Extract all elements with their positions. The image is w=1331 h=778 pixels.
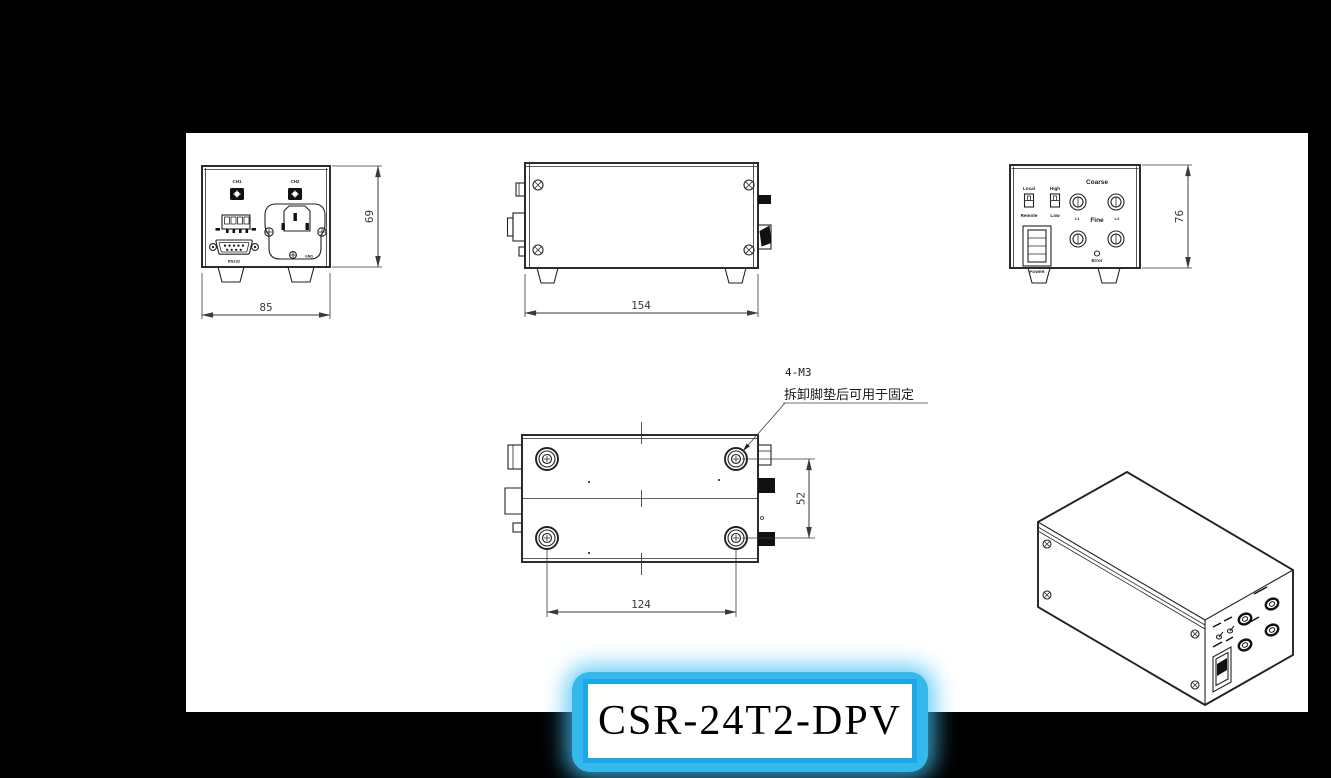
coarse-knob-l1 <box>1070 194 1086 210</box>
model-number: CSR-24T2-DPV <box>598 697 902 745</box>
front-view: Local High Remote Low <box>1010 165 1192 283</box>
dim-rear-height: 69 <box>363 210 376 223</box>
rear-label-ch2: CH2 <box>290 179 299 184</box>
rear-foot-left <box>218 267 244 282</box>
toggle-switch-high-low <box>1051 194 1060 207</box>
fine-knob-l2 <box>1108 231 1124 247</box>
coarse-knob-l2 <box>1108 194 1124 210</box>
side-right-protrusions <box>758 195 772 249</box>
terminal-block-icon <box>216 215 257 233</box>
rear-foot-right <box>288 267 314 282</box>
drawing-sheet: CH1 CH2 <box>186 133 1308 712</box>
front-label-error: Error <box>1091 258 1102 263</box>
canvas: CH1 CH2 <box>0 0 1331 778</box>
side-view: 154 <box>508 163 772 317</box>
terminal-label-mark-left <box>216 228 221 231</box>
isometric-view <box>1038 472 1293 705</box>
fine-knob-l1 <box>1070 231 1086 247</box>
front-label-l1: L1 <box>1075 216 1080 221</box>
ch2-connector-icon <box>288 188 302 200</box>
m3-callout: 4-M3 拆卸脚垫后可用于固定 <box>743 366 928 451</box>
engineering-drawing: CH1 CH2 <box>186 133 1308 712</box>
ch1-connector-icon <box>230 188 244 200</box>
callout-4-m3: 4-M3 <box>785 366 812 379</box>
title-box: CSR-24T2-DPV <box>583 679 917 763</box>
error-led <box>1095 251 1100 256</box>
callout-chinese-note: 拆卸脚垫后可用于固定 <box>784 387 914 402</box>
dim-front-height: 76 <box>1173 210 1186 223</box>
power-rocker-switch <box>1023 226 1051 266</box>
front-label-low: Low <box>1050 213 1060 218</box>
rear-view: CH1 CH2 <box>202 166 382 319</box>
front-label-power: POWER <box>1029 269 1044 274</box>
front-label-local: Local <box>1023 186 1035 191</box>
terminal-label-mark-right <box>252 228 257 231</box>
dim-foot-span-x: 124 <box>631 598 651 611</box>
rear-label-ch1: CH1 <box>232 179 241 184</box>
toggle-switch-local-remote <box>1025 194 1034 207</box>
side-screws <box>533 180 754 255</box>
rear-label-gnd: GND <box>305 255 313 259</box>
dim-side-length: 154 <box>631 299 651 312</box>
front-label-l2: L2 <box>1115 216 1120 221</box>
bottom-left-protrusions <box>505 445 522 532</box>
iso-side-screws <box>1043 540 1199 689</box>
rear-label-rs232: RS232 <box>228 259 241 264</box>
side-left-protrusions <box>508 183 526 256</box>
rs232-connector-icon <box>210 240 259 254</box>
iso-front-panel <box>1213 587 1280 692</box>
front-label-remote: Remote <box>1021 213 1038 218</box>
front-label-fine: Fine <box>1090 217 1104 224</box>
bottom-right-protrusions <box>758 445 775 546</box>
dim-foot-span-y: 52 <box>795 492 808 505</box>
front-label-coarse: Coarse <box>1086 179 1108 186</box>
front-label-high: High <box>1050 186 1060 191</box>
bottom-view: 4-M3 拆卸脚垫后可用于固定 52 124 <box>505 366 928 617</box>
dim-rear-width: 85 <box>259 301 272 314</box>
power-inlet-icon <box>265 204 326 259</box>
